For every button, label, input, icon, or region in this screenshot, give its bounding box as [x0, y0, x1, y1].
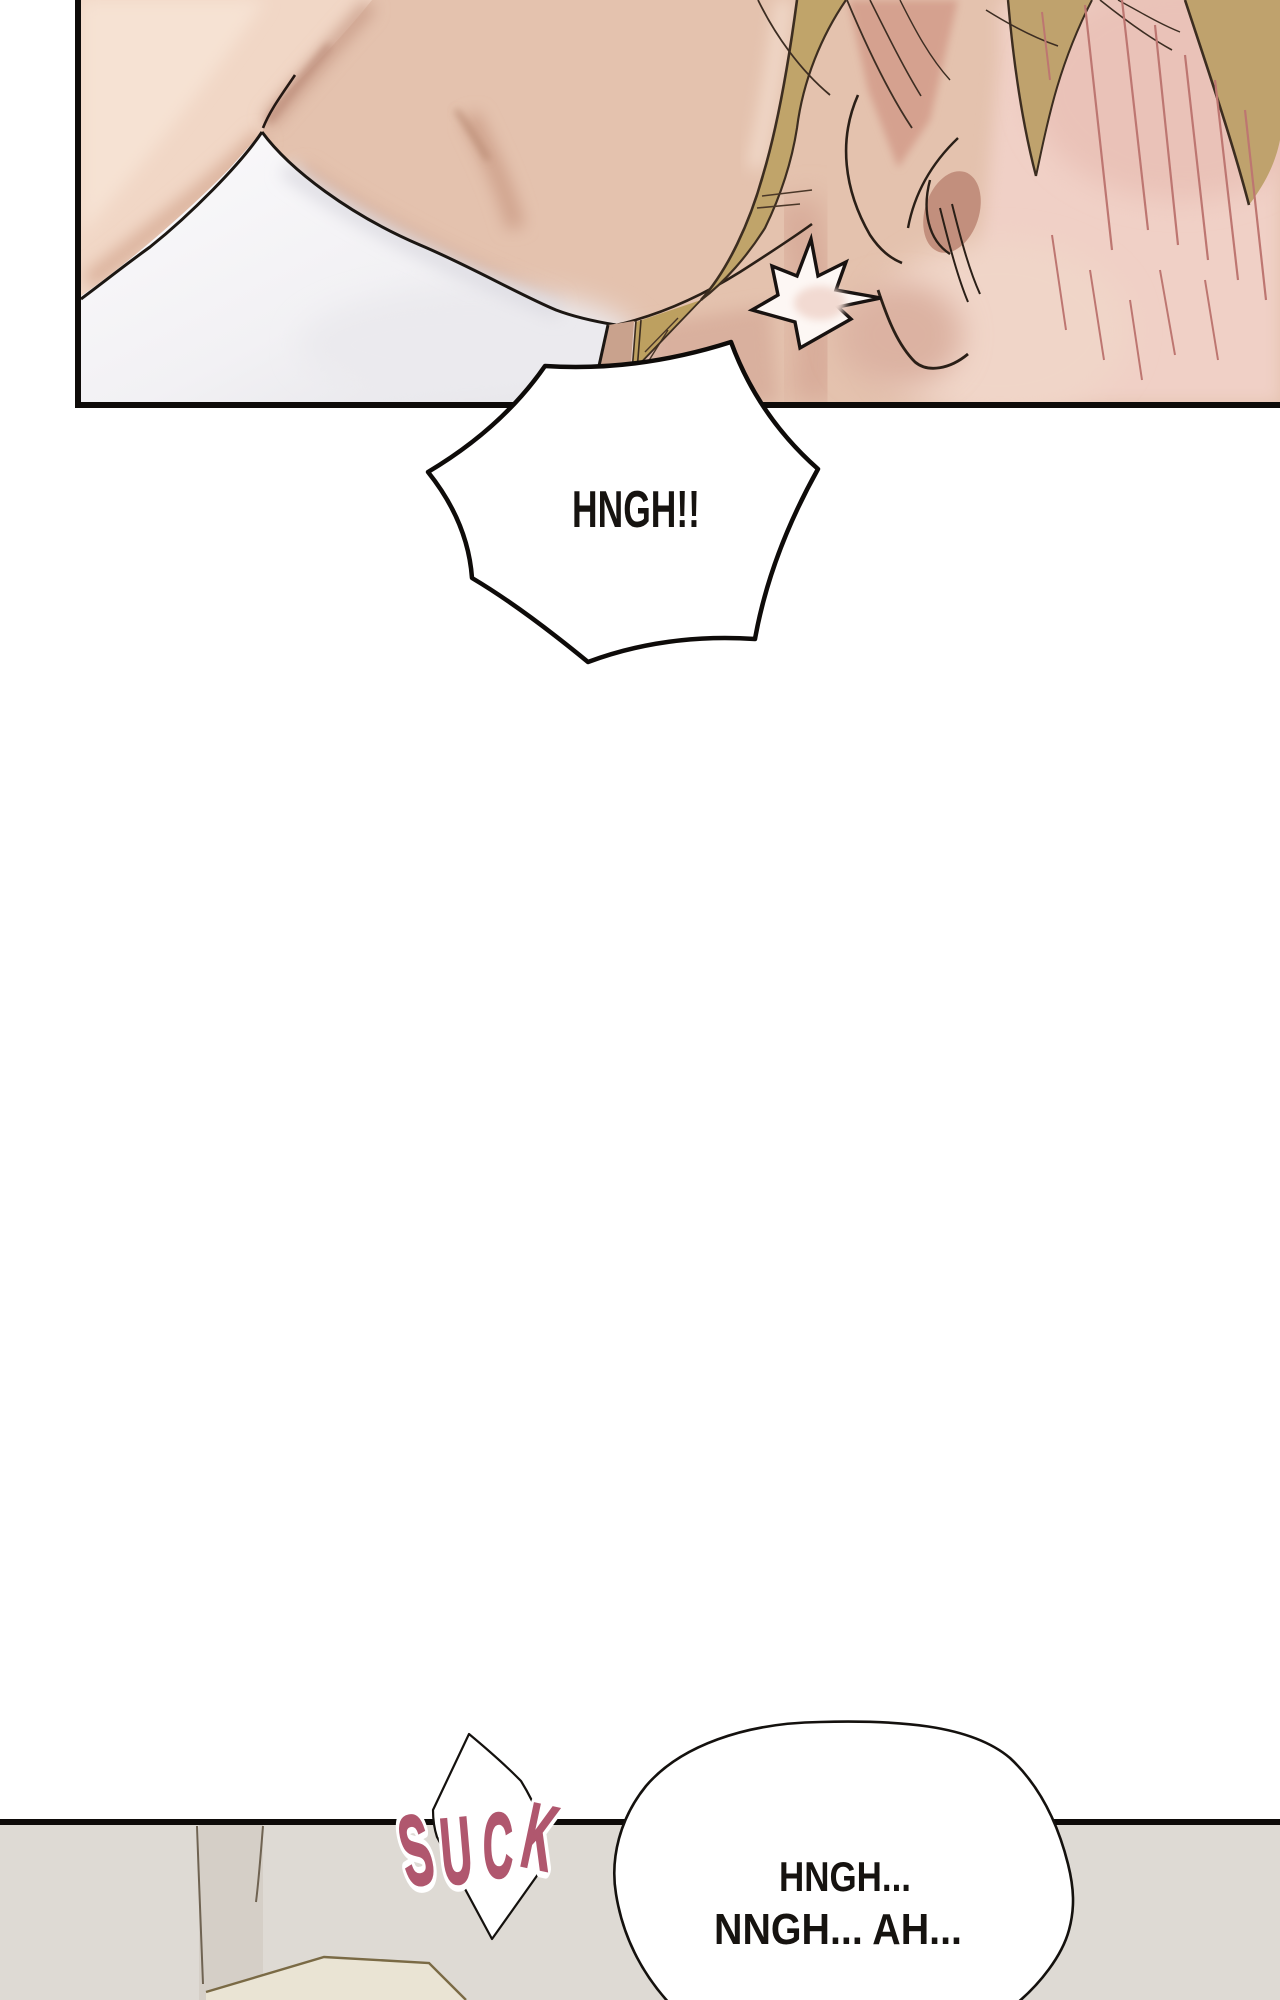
svg-text:HNGH!!: HNGH!!: [572, 481, 700, 539]
svg-text:NNGH... AH...: NNGH... AH...: [714, 1905, 962, 1954]
svg-text:C: C: [483, 1794, 513, 1897]
svg-text:HNGH...: HNGH...: [779, 1853, 911, 1900]
